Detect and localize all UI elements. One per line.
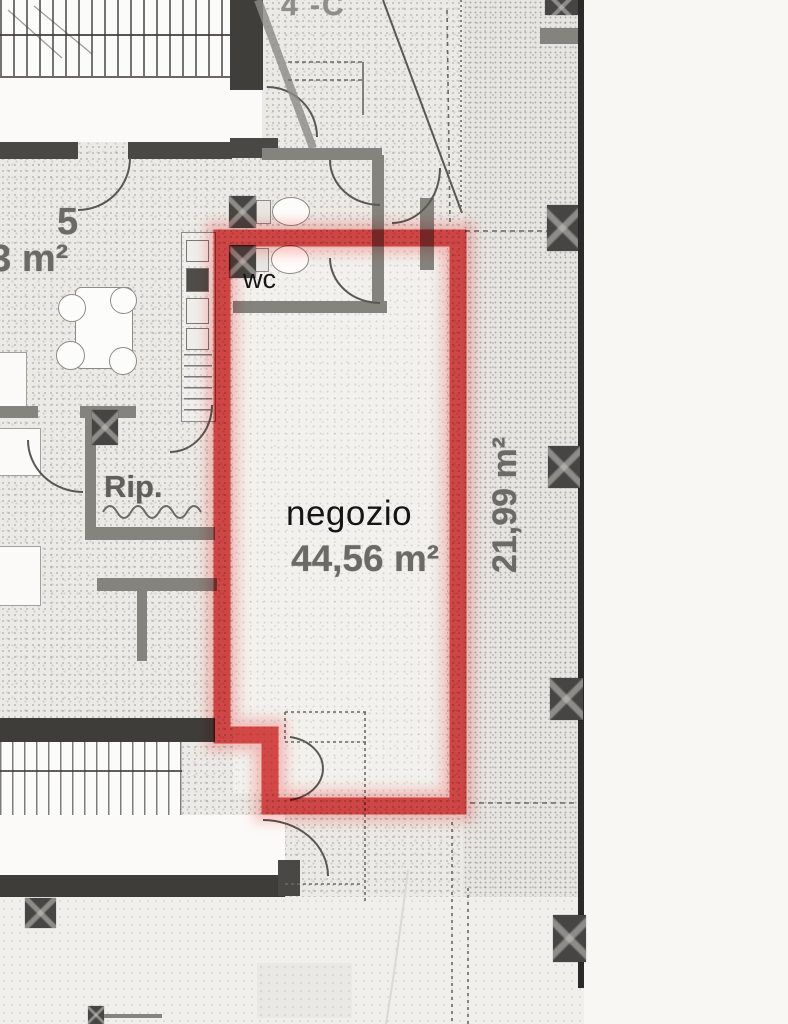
storage-label: Rip. [104,471,163,502]
apartment-area-label: 63 m² [0,240,68,278]
unit-label: 4 -C [281,0,346,21]
apartment-number-label: 5 [57,203,78,241]
shop-name-label: negozio [286,496,412,531]
scanned-floor-plan: 4 -C 5 63 m² wc Rip. negozio 44,56 m² 21… [0,0,788,1024]
wc-label: wc [243,266,276,293]
outdoor-area-label: 21,99 m² [488,420,522,590]
shop-area-label: 44,56 m² [291,540,439,577]
